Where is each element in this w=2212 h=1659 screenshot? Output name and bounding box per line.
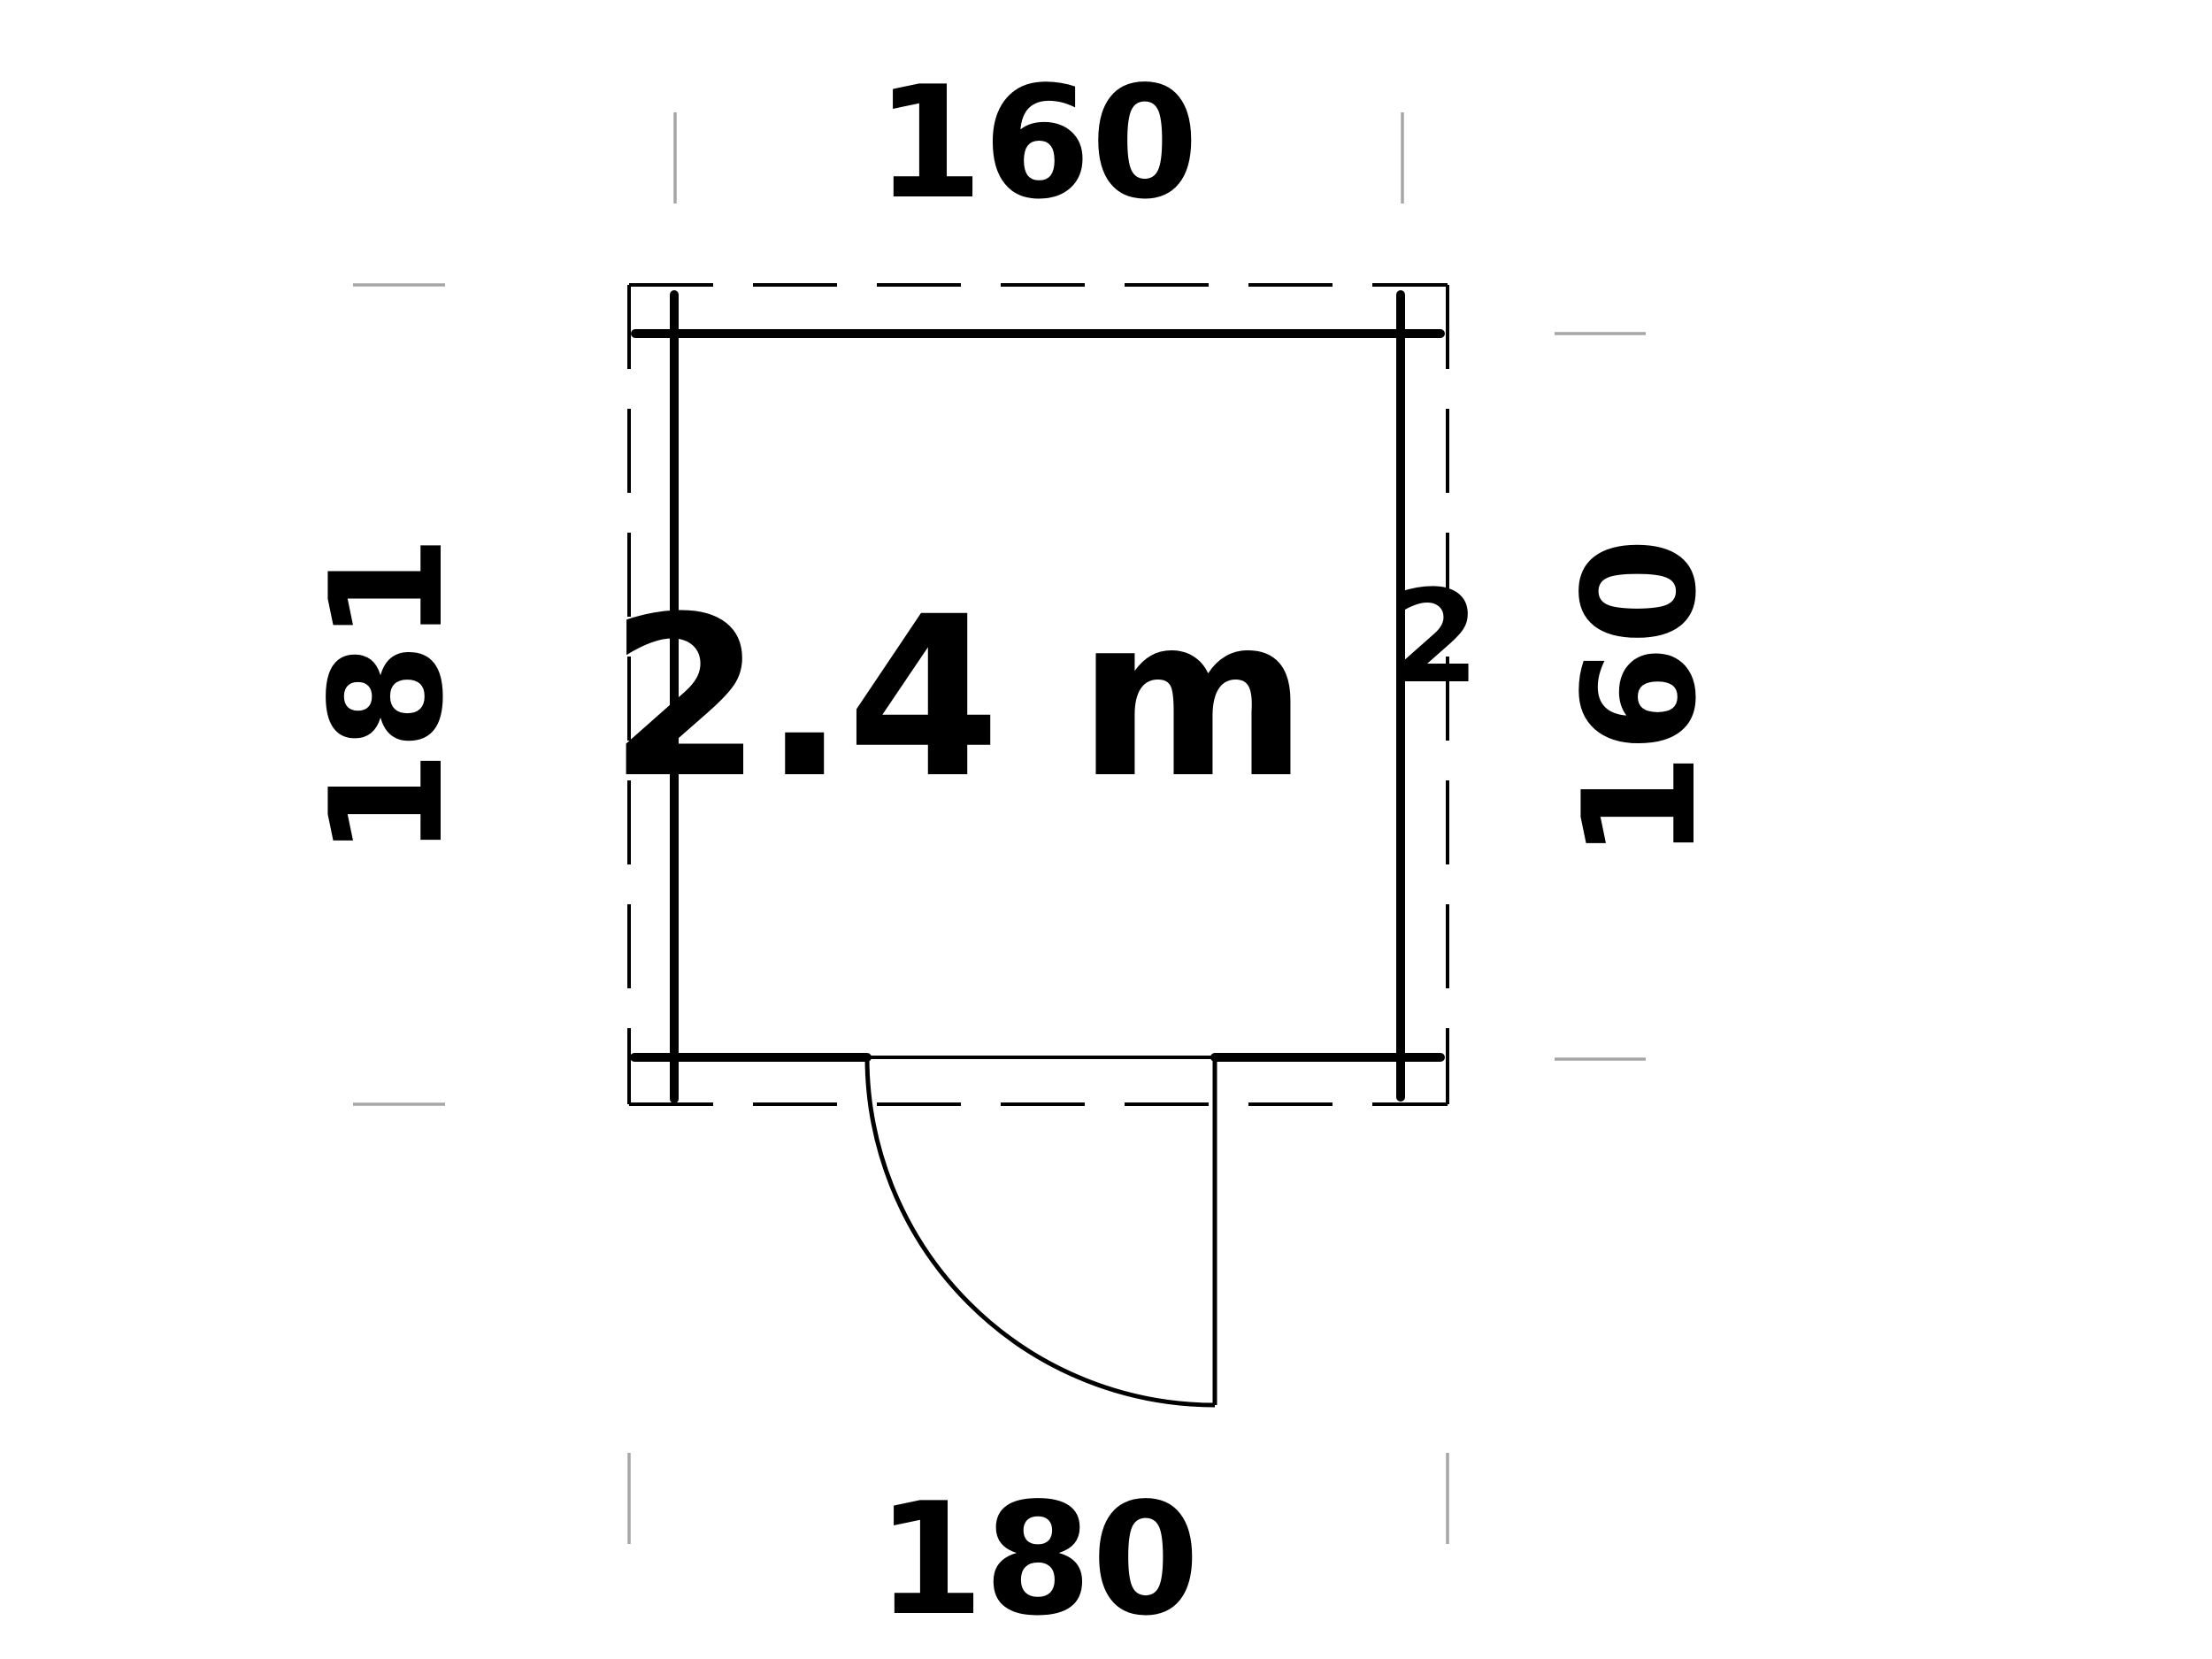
area-label: 2.4 m 2 bbox=[609, 563, 1479, 826]
area-label-main: 2.4 m bbox=[609, 569, 1308, 826]
floor-plan-drawing: 160 180 181 160 2.4 m 2 bbox=[0, 0, 2212, 1659]
dimension-label-top: 160 bbox=[875, 54, 1198, 234]
floor-plan-canvas: 160 180 181 160 2.4 m 2 bbox=[0, 0, 2212, 1659]
dimension-labels: 160 180 181 160 bbox=[298, 54, 1731, 1650]
door-symbol bbox=[867, 1057, 1215, 1405]
door-swing-arc bbox=[867, 1057, 1215, 1405]
dimension-label-bottom: 180 bbox=[876, 1471, 1199, 1650]
dimension-label-right: 160 bbox=[1551, 537, 1731, 860]
area-label-exponent: 2 bbox=[1390, 563, 1479, 712]
dimension-label-left: 181 bbox=[298, 534, 478, 857]
